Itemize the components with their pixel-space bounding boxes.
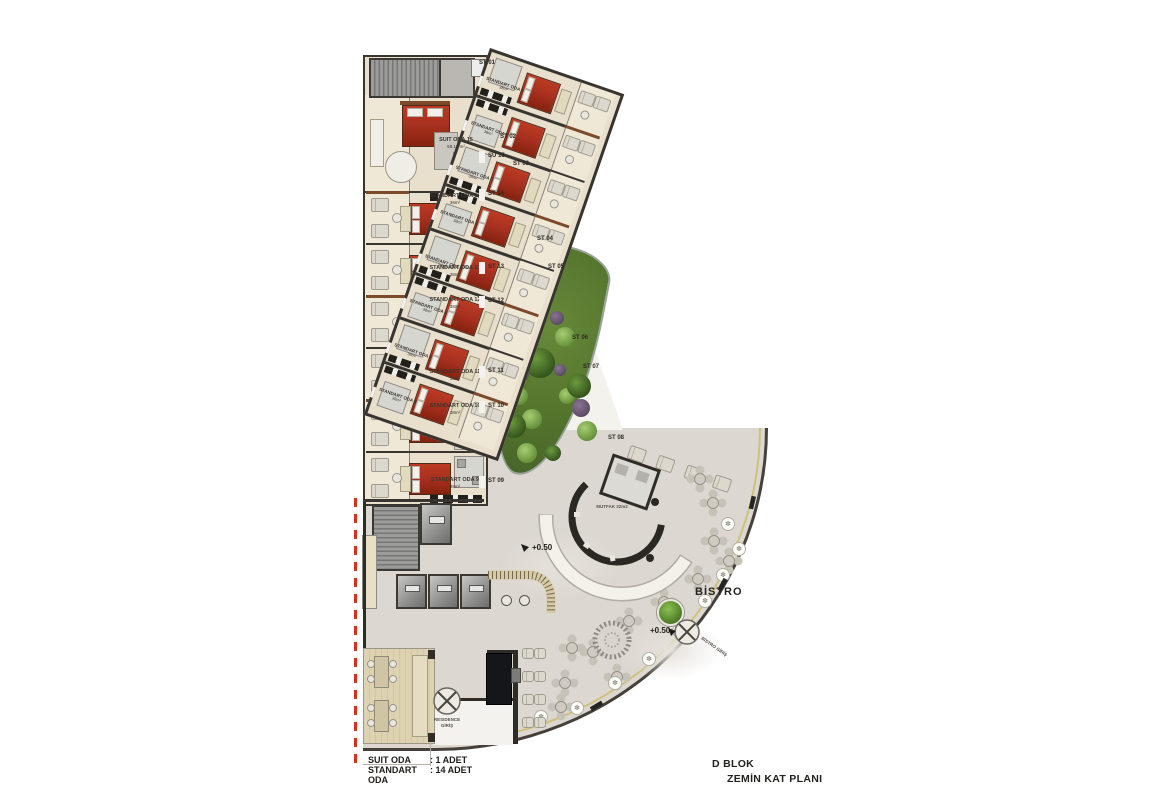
tree bbox=[550, 311, 564, 325]
plant-icon: ✽ bbox=[732, 542, 746, 556]
plant-icon: ✽ bbox=[570, 701, 584, 715]
door-label-st03: ST 03 bbox=[505, 161, 529, 167]
floor-plan: STANDART ODA 138m²STANDART ODA 238m²STAN… bbox=[0, 0, 1149, 800]
suite-room-area: 58.17 m² bbox=[420, 144, 492, 150]
door-label-st10: ST 10 bbox=[488, 403, 504, 409]
deck-chair bbox=[367, 719, 375, 727]
legend-suit-name: SUIT ODA bbox=[368, 755, 430, 765]
door-label-st07: ST 07 bbox=[575, 364, 599, 370]
bistro-table-set bbox=[694, 473, 706, 485]
deck-post bbox=[428, 650, 435, 659]
tree bbox=[545, 445, 561, 461]
terrace-table bbox=[392, 265, 402, 275]
suite-headboard-wall bbox=[400, 101, 450, 105]
bistro-label: BİSTRO bbox=[695, 586, 743, 598]
door-gap bbox=[479, 366, 485, 378]
stairwell-lobby bbox=[372, 505, 420, 571]
terrace-divider bbox=[366, 243, 409, 245]
room-name: STANDART ODA 14 bbox=[429, 193, 480, 199]
deck-post bbox=[428, 733, 435, 742]
legend-standart-count: : 14 ADET bbox=[430, 765, 472, 785]
legend-standart-name: STANDART ODA bbox=[368, 765, 430, 785]
lounge-chair bbox=[534, 717, 546, 728]
legend-suit-count: : 1 ADET bbox=[430, 755, 467, 765]
sun-lounger bbox=[371, 276, 389, 290]
level-label-bistro: +0.50 bbox=[650, 626, 670, 635]
lounge-chair bbox=[522, 694, 534, 705]
tree bbox=[517, 443, 537, 463]
legend-row-standart: STANDART ODA : 14 ADET bbox=[368, 765, 472, 785]
bistro-table-set bbox=[623, 615, 635, 627]
sun-lounger bbox=[371, 484, 389, 498]
terrace-table bbox=[392, 213, 402, 223]
plant-icon: ✽ bbox=[721, 517, 735, 531]
suite-sofa bbox=[370, 119, 384, 167]
plant-icon: ✽ bbox=[608, 676, 622, 690]
suite-round-chair bbox=[385, 151, 417, 183]
bistro-table-set bbox=[559, 677, 571, 689]
bistro-table-set bbox=[708, 535, 720, 547]
plan-title-block: D BLOK bbox=[712, 758, 754, 770]
lounge-chair bbox=[534, 671, 546, 682]
residence-entrance-label: RESIDENCE GİRİŞ bbox=[427, 717, 467, 729]
plant-icon: ✽ bbox=[716, 568, 730, 582]
sun-lounger bbox=[371, 328, 389, 342]
door-gap bbox=[479, 151, 485, 163]
deck-bench bbox=[412, 655, 428, 737]
door-label-st04: ST 04 bbox=[529, 236, 553, 242]
deck-chair bbox=[389, 719, 397, 727]
tree bbox=[577, 421, 597, 441]
sun-lounger bbox=[371, 432, 389, 446]
bistro-table-set bbox=[566, 642, 578, 654]
left-wing-south-wall bbox=[363, 499, 484, 502]
elevator bbox=[396, 574, 427, 609]
reception-stool bbox=[519, 595, 530, 606]
room-name: STANDART ODA 11 bbox=[430, 369, 481, 375]
lounge-chair bbox=[534, 694, 546, 705]
door-gap bbox=[479, 296, 485, 308]
residence-entrance-line1: RESIDENCE bbox=[434, 717, 460, 722]
reception-stool bbox=[501, 595, 512, 606]
tree bbox=[554, 364, 566, 376]
sun-lounger bbox=[627, 445, 648, 464]
stairwell-top bbox=[369, 58, 443, 98]
terrace-table bbox=[392, 473, 402, 483]
sun-lounger bbox=[712, 474, 733, 493]
lounge-chair bbox=[534, 648, 546, 659]
level-label-lobby: +0.50 bbox=[532, 543, 552, 552]
door-label-st11: ST 11 bbox=[488, 368, 504, 374]
red-section-line bbox=[354, 498, 357, 766]
door-label-st06: ST 06 bbox=[564, 335, 588, 341]
elevator bbox=[428, 574, 459, 609]
bistro-table-set bbox=[692, 573, 704, 585]
sun-lounger bbox=[371, 198, 389, 212]
sun-lounger bbox=[371, 458, 389, 472]
door-gap bbox=[479, 262, 485, 274]
door-label-st08: ST 08 bbox=[600, 435, 624, 441]
door-gap bbox=[479, 189, 485, 201]
terrace-divider bbox=[366, 451, 409, 453]
sun-lounger bbox=[371, 302, 389, 316]
legend: SUIT ODA : 1 ADET STANDART ODA : 14 ADET bbox=[368, 755, 472, 785]
sun-lounger bbox=[371, 224, 389, 238]
suite-room-name: SUIT ODA 15 bbox=[439, 137, 473, 143]
elevator bbox=[460, 574, 491, 609]
door-label-su15: SU 15 bbox=[488, 153, 505, 159]
residence-entrance-line2: GİRİŞ bbox=[441, 723, 453, 728]
deck-table bbox=[374, 700, 389, 732]
water-feature bbox=[486, 653, 512, 705]
room-name: STANDART ODA 10 bbox=[429, 403, 480, 409]
room-name: STANDART ODA 12 bbox=[429, 297, 480, 303]
door-gap bbox=[479, 401, 485, 413]
west-wall bbox=[363, 500, 366, 648]
deck-chair bbox=[389, 704, 397, 712]
sun-lounger bbox=[371, 250, 389, 264]
door-label-st13: ST 13 bbox=[488, 264, 504, 270]
suite-room-label: SUIT ODA 15 58.17 m² bbox=[420, 137, 492, 150]
door-label-st12: ST 12 bbox=[488, 298, 504, 304]
sun-lounger bbox=[655, 455, 676, 474]
door-label-st14: ST 14 bbox=[488, 191, 504, 197]
deck-chair bbox=[389, 660, 397, 668]
lounge-chair bbox=[522, 671, 534, 682]
tree bbox=[567, 374, 591, 398]
bistro-table-set bbox=[587, 646, 599, 658]
water-feature-pump bbox=[511, 668, 521, 683]
deck-chair bbox=[367, 675, 375, 683]
room-name: STANDART ODA 9 bbox=[431, 477, 479, 483]
bar-kitchen-label: MUTFAK 32m2 bbox=[592, 504, 632, 510]
deck-table bbox=[374, 656, 389, 688]
terrace-divider-brown bbox=[366, 191, 409, 195]
plant-icon: ✽ bbox=[642, 652, 656, 666]
plan-title-floor: ZEMİN KAT PLANI bbox=[727, 773, 822, 785]
stair-landing bbox=[439, 58, 475, 98]
door-label-st05: ST 05 bbox=[540, 264, 564, 270]
tree bbox=[572, 399, 590, 417]
room-name: STANDART ODA 13 bbox=[429, 265, 480, 271]
bistro-table-set bbox=[723, 555, 735, 567]
plant-icon: ✽ bbox=[672, 624, 686, 638]
elevator bbox=[420, 503, 452, 545]
terrace-divider-brown bbox=[366, 295, 409, 299]
legend-row-suit: SUIT ODA : 1 ADET bbox=[368, 755, 472, 765]
deck-chair bbox=[367, 660, 375, 668]
lounge-chair bbox=[522, 648, 534, 659]
lounge-chair bbox=[522, 717, 534, 728]
bistro-table-set bbox=[555, 701, 567, 713]
door-label-st09: ST 09 bbox=[488, 478, 504, 484]
door-label-st02: ST 02 bbox=[492, 134, 516, 140]
deck-chair bbox=[389, 675, 397, 683]
door-gap bbox=[479, 476, 485, 488]
bistro-table-set bbox=[707, 497, 719, 509]
deck-chair bbox=[367, 704, 375, 712]
door-label-st01: ST 01 bbox=[471, 60, 495, 66]
potted-plant-icon bbox=[657, 599, 684, 626]
